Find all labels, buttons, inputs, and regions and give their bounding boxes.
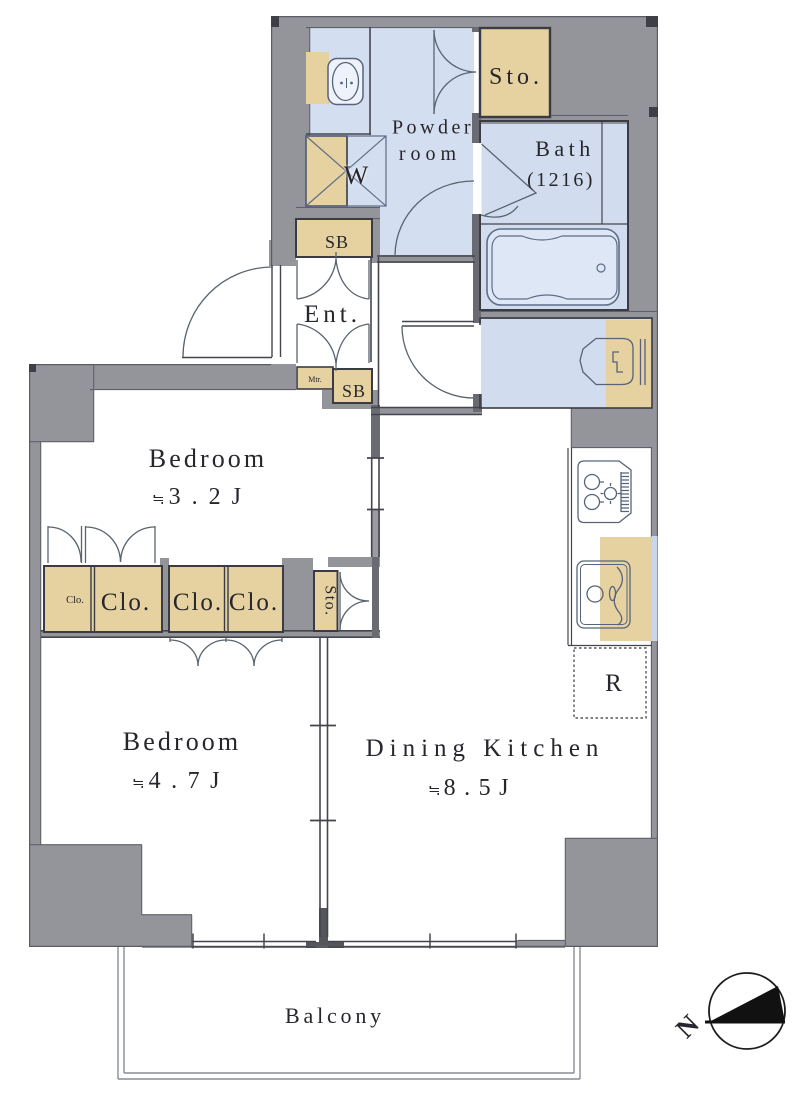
svg-text:Bath: Bath bbox=[535, 136, 595, 161]
svg-text:R: R bbox=[605, 670, 622, 697]
svg-text:Powder: Powder bbox=[392, 117, 474, 139]
svg-text:Bedroom: Bedroom bbox=[123, 727, 241, 756]
svg-text:(1216): (1216) bbox=[527, 169, 595, 191]
svg-text:Clo.: Clo. bbox=[66, 595, 84, 606]
svg-text:Dining Kitchen: Dining Kitchen bbox=[366, 735, 605, 762]
svg-text:SB: SB bbox=[342, 381, 366, 401]
svg-text:Clo.: Clo. bbox=[101, 589, 151, 616]
svg-text:room: room bbox=[399, 143, 461, 165]
svg-text:Clo.: Clo. bbox=[229, 589, 279, 616]
svg-text:Mtr.: Mtr. bbox=[308, 375, 322, 384]
svg-text:W: W bbox=[344, 161, 369, 190]
svg-text:Sto.: Sto. bbox=[322, 585, 339, 616]
svg-text:Sto.: Sto. bbox=[489, 64, 543, 90]
svg-text:Clo.: Clo. bbox=[173, 589, 223, 616]
svg-text:Ent.: Ent. bbox=[304, 301, 361, 328]
svg-text:Balcony: Balcony bbox=[285, 1003, 385, 1028]
svg-text:Bedroom: Bedroom bbox=[149, 444, 267, 473]
svg-text:SB: SB bbox=[325, 232, 349, 252]
